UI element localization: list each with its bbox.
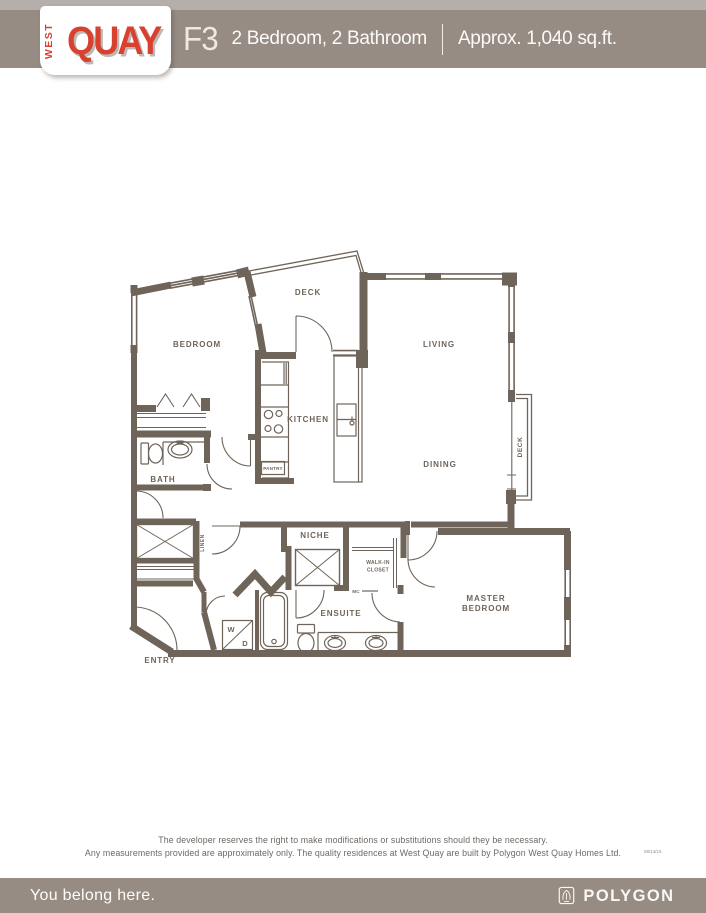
disclaimer: The developer reserves the right to make… [0, 834, 706, 859]
label-walkin-1: WALK-IN [366, 560, 390, 566]
label-niche: NICHE [300, 531, 329, 540]
brand-name: POLYGON [583, 886, 674, 906]
label-walkin-2: CLOSET [367, 568, 389, 574]
polygon-crest-icon [558, 886, 575, 905]
label-ensuite: ENSUITE [321, 609, 362, 618]
tagline: You belong here. [30, 887, 155, 905]
label-entry: ENTRY [144, 656, 175, 665]
ensuite-fixtures [261, 593, 401, 654]
deck-railings [249, 251, 532, 500]
disclaimer-line1: The developer reserves the right to make… [0, 834, 706, 847]
label-living: LIVING [423, 340, 455, 349]
label-master-1: MASTER [466, 594, 505, 603]
label-dryer: D [242, 639, 248, 648]
label-deck-right: DECK [517, 437, 524, 458]
label-bath: BATH [150, 475, 175, 484]
label-linen: LINEN [200, 534, 206, 552]
label-deck-top: DECK [295, 288, 321, 297]
disclaimer-line2: Any measurements provided are approximat… [0, 847, 706, 860]
windows [132, 270, 570, 645]
label-kitchen: KITCHEN [287, 415, 329, 424]
shower [296, 550, 340, 586]
floorplan-drawing: BEDROOM DECK LIVING KITCHEN PANTRY BATH … [0, 0, 706, 913]
linen-closet [136, 525, 194, 580]
footer-bar: You belong here. POLYGON [0, 878, 706, 913]
label-dining: DINING [423, 460, 456, 469]
bath-fixtures [141, 441, 207, 465]
polygon-brand: POLYGON [558, 886, 676, 906]
wall-blocks [131, 273, 518, 505]
label-washer: W [227, 625, 235, 634]
revision-code: 08/13/15 [644, 849, 662, 854]
label-pantry: PANTRY [263, 466, 283, 471]
label-mc: MC [352, 589, 360, 594]
label-bedroom: BEDROOM [173, 340, 221, 349]
label-master-2: BEDROOM [462, 604, 510, 613]
